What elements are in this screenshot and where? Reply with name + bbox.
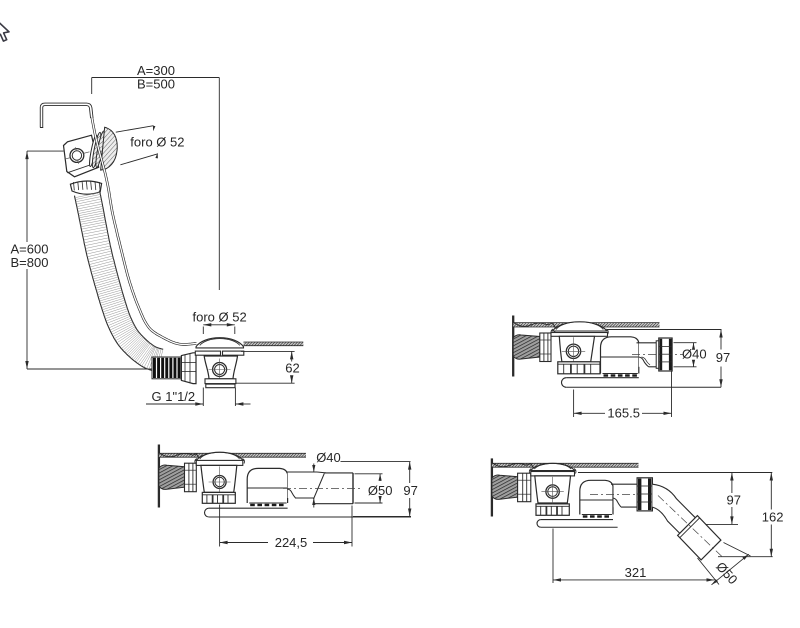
- svg-text:97: 97: [727, 493, 741, 508]
- svg-text:62: 62: [285, 360, 299, 375]
- svg-text:162: 162: [762, 509, 784, 524]
- svg-text:Ø40: Ø40: [682, 347, 707, 362]
- svg-text:foro Ø 52: foro Ø 52: [130, 134, 184, 149]
- svg-text:Ø50: Ø50: [368, 483, 393, 498]
- svg-text:B=800: B=800: [11, 255, 49, 270]
- svg-text:97: 97: [716, 350, 730, 365]
- svg-text:321: 321: [625, 565, 647, 580]
- svg-text:165.5: 165.5: [607, 406, 640, 421]
- svg-text:Ø40: Ø40: [316, 450, 341, 465]
- svg-text:foro Ø 52: foro Ø 52: [193, 310, 247, 325]
- svg-text:97: 97: [403, 483, 417, 498]
- svg-text:G 1"1/2: G 1"1/2: [152, 389, 196, 404]
- svg-text:B=500: B=500: [137, 77, 175, 92]
- svg-text:224,5: 224,5: [275, 535, 308, 550]
